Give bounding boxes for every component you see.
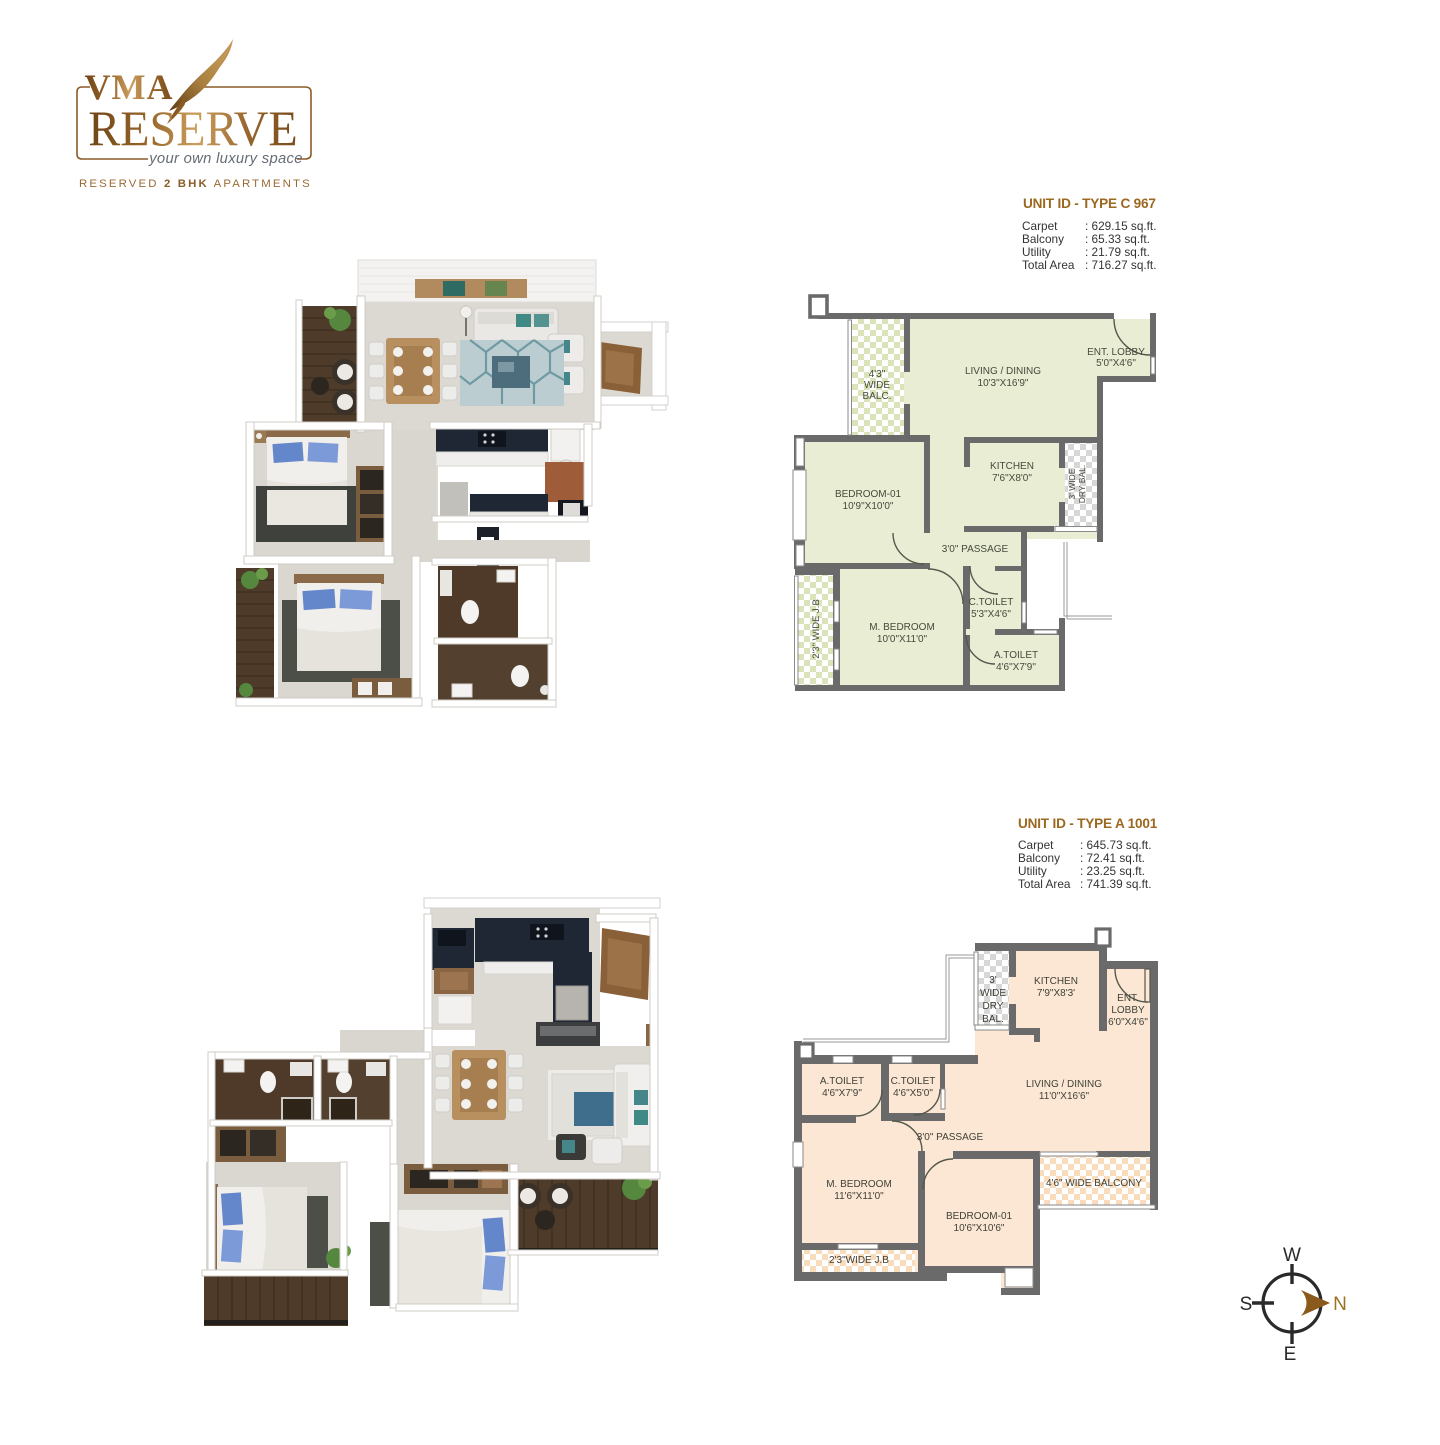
svg-text:: 65.33 sq.ft.: : 65.33 sq.ft. <box>1085 232 1150 246</box>
svg-text:RESERVED 2 BHK APARTMENTS: RESERVED 2 BHK APARTMENTS <box>79 178 312 190</box>
svg-text:10'6"X10'6": 10'6"X10'6" <box>954 1223 1005 1234</box>
svg-text:S: S <box>1240 1294 1253 1315</box>
svg-text:11'6"X11'0": 11'6"X11'0" <box>834 1191 884 1202</box>
svg-text:C.TOILET: C.TOILET <box>969 597 1014 608</box>
svg-text:6'0"X4'6": 6'0"X4'6" <box>1108 1017 1148 1028</box>
svg-text:7'6"X8'0": 7'6"X8'0" <box>992 473 1032 484</box>
svg-text:: 72.41 sq.ft.: : 72.41 sq.ft. <box>1080 851 1145 865</box>
svg-text:10'0"X11'0": 10'0"X11'0" <box>877 634 928 645</box>
svg-text:WIDE: WIDE <box>864 380 890 391</box>
svg-text:3'0" PASSAGE: 3'0" PASSAGE <box>942 544 1009 555</box>
svg-text:M. BEDROOM: M. BEDROOM <box>826 1179 892 1190</box>
svg-text:Carpet: Carpet <box>1018 838 1054 852</box>
svg-text:11'0"X16'6": 11'0"X16'6" <box>1039 1091 1090 1102</box>
svg-text:Total Area: Total Area <box>1018 877 1071 891</box>
svg-text:4'6"X5'0": 4'6"X5'0" <box>893 1088 933 1099</box>
svg-text:KITCHEN: KITCHEN <box>1034 976 1078 987</box>
svg-text:7'9"X8'3': 7'9"X8'3' <box>1037 988 1075 999</box>
svg-text:Utility: Utility <box>1022 245 1051 259</box>
svg-text:UNIT ID - TYPE A 1001: UNIT ID - TYPE A 1001 <box>1018 816 1158 831</box>
svg-text:2'3" WIDE J.B: 2'3" WIDE J.B <box>811 599 822 659</box>
svg-text:WIDE: WIDE <box>980 988 1006 999</box>
svg-text:LIVING / DINING: LIVING / DINING <box>965 366 1041 377</box>
svg-text:: 21.79 sq.ft.: : 21.79 sq.ft. <box>1085 245 1150 259</box>
svg-text:RESERVE: RESERVE <box>88 100 297 156</box>
svg-text:10'3"X16'9": 10'3"X16'9" <box>978 378 1029 389</box>
svg-text:Balcony: Balcony <box>1018 851 1060 865</box>
svg-text:10'9"X10'0": 10'9"X10'0" <box>843 501 894 512</box>
svg-text:E: E <box>1284 1344 1297 1365</box>
svg-text:A.TOILET: A.TOILET <box>820 1076 864 1087</box>
svg-text:4'6"X7'9": 4'6"X7'9" <box>822 1088 862 1099</box>
svg-text:KITCHEN: KITCHEN <box>990 461 1034 472</box>
svg-text:BEDROOM-01: BEDROOM-01 <box>835 489 902 500</box>
svg-text:2'3"WIDE J.B: 2'3"WIDE J.B <box>829 1255 889 1266</box>
svg-text:UNIT ID - TYPE C 967: UNIT ID - TYPE C 967 <box>1023 196 1156 211</box>
svg-text:ENT. LOBBY: ENT. LOBBY <box>1087 347 1145 358</box>
svg-text:Utility: Utility <box>1018 864 1047 878</box>
svg-text:BALC.: BALC. <box>863 391 892 402</box>
svg-text:4'6"X7'9": 4'6"X7'9" <box>996 662 1036 673</box>
svg-text:: 629.15 sq.ft.: : 629.15 sq.ft. <box>1085 219 1156 233</box>
svg-text:Total Area: Total Area <box>1022 258 1075 272</box>
svg-text:3'0" PASSAGE: 3'0" PASSAGE <box>917 1132 984 1143</box>
svg-text:3' WIDE: 3' WIDE <box>1067 468 1077 499</box>
svg-text:W: W <box>1283 1245 1301 1266</box>
svg-text:BEDROOM-01: BEDROOM-01 <box>946 1211 1013 1222</box>
svg-text:: 741.39 sq.ft.: : 741.39 sq.ft. <box>1080 877 1151 891</box>
svg-text:LIVING / DINING: LIVING / DINING <box>1026 1079 1102 1090</box>
svg-text:BAL.: BAL. <box>982 1014 1004 1025</box>
svg-text:5'0"X4'6": 5'0"X4'6" <box>1096 358 1136 369</box>
svg-text:: 645.73 sq.ft.: : 645.73 sq.ft. <box>1080 838 1151 852</box>
svg-text:: 23.25 sq.ft.: : 23.25 sq.ft. <box>1080 864 1145 878</box>
svg-text:Carpet: Carpet <box>1022 219 1058 233</box>
svg-text:: 716.27 sq.ft.: : 716.27 sq.ft. <box>1085 258 1156 272</box>
svg-text:LOBBY: LOBBY <box>1111 1005 1145 1016</box>
svg-text:your own luxury space: your own luxury space <box>148 151 303 167</box>
svg-text:N: N <box>1333 1294 1347 1315</box>
svg-text:Balcony: Balcony <box>1022 232 1064 246</box>
svg-text:5'3"X4'6": 5'3"X4'6" <box>971 609 1011 620</box>
svg-text:C.TOILET: C.TOILET <box>891 1076 936 1087</box>
svg-text:DRY: DRY <box>983 1001 1004 1012</box>
svg-text:4'6" WIDE BALCONY: 4'6" WIDE BALCONY <box>1046 1178 1142 1189</box>
svg-text:M. BEDROOM: M. BEDROOM <box>869 622 935 633</box>
svg-text:DRY BAL.: DRY BAL. <box>1077 465 1087 503</box>
svg-text:4'3": 4'3" <box>869 369 886 380</box>
svg-text:3': 3' <box>989 975 997 986</box>
svg-text:ENT.: ENT. <box>1117 993 1139 1004</box>
svg-text:A.TOILET: A.TOILET <box>994 650 1038 661</box>
